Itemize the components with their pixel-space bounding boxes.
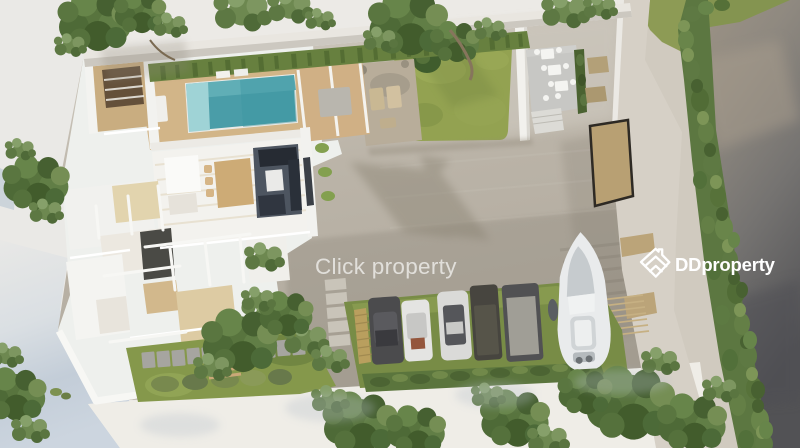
svg-text:Click property: Click property	[315, 254, 457, 279]
svg-text:DDproperty: DDproperty	[675, 254, 776, 275]
